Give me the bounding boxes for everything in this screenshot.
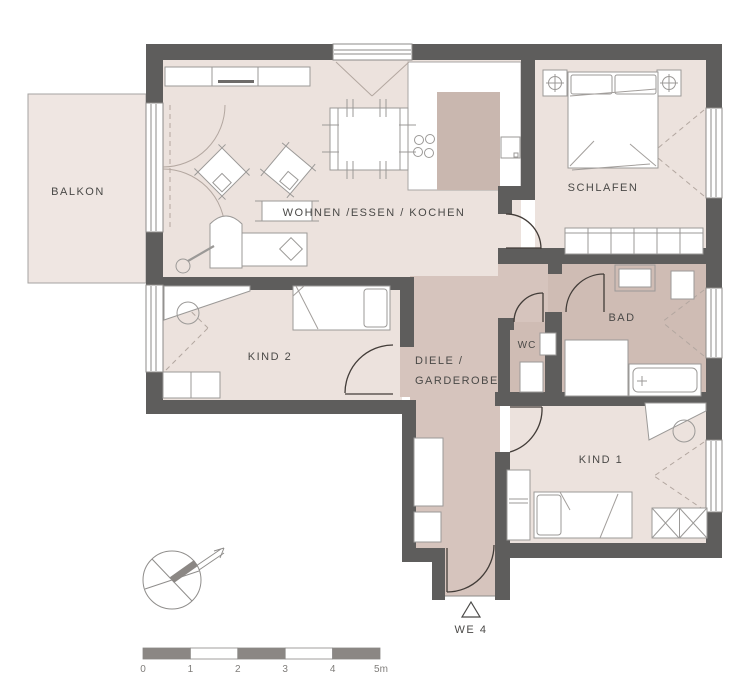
single-bed [534,492,632,538]
washbasin [615,265,655,291]
single-bed [293,286,390,330]
wall-segment [548,264,562,274]
label-bad: BAD [608,312,635,324]
floor-plan-drawing: 0 1 2 3 4 5m BALKON WOHNEN /ESSEN / KOCH… [0,0,748,683]
sideboard [165,67,310,86]
label-balkon: BALKON [51,186,105,198]
wardrobe-crossed [652,508,707,538]
wc-shelf [540,333,556,355]
double-bed [568,72,658,170]
hallway-closets [414,438,443,542]
kitchen-sink [501,137,520,158]
nightstand-lamp [657,70,681,96]
wall-segment [146,400,414,414]
built-in-closet [414,438,443,506]
scale-tick: 0 [140,664,146,675]
scale-tick: 3 [282,664,288,675]
label-kind2: KIND 2 [248,351,292,363]
shower [565,340,628,396]
scale-bar: 0 1 2 3 4 5m [140,648,388,675]
bathtub [629,364,701,396]
tall-closet [507,470,530,540]
dining-table [322,99,416,179]
wall-segment [706,198,722,288]
hallway-nook-floor [498,264,553,322]
wall-segment [706,60,722,108]
scale-segment [143,648,190,659]
triangle-entrance-marker-icon [462,602,480,617]
wall-segment [146,372,163,400]
nightstand-lamp [543,70,567,96]
floor-plan-canvas: 0 1 2 3 4 5m BALKON WOHNEN /ESSEN / KOCH… [0,0,748,683]
wall-segment [146,60,163,103]
scale-segment [190,648,237,659]
scale-segment [333,648,380,659]
compass-north-arrow-icon [143,548,224,609]
scale-tick: 1 [188,664,194,675]
scale-tick: 2 [235,664,241,675]
wall-segment [146,232,163,285]
vestibule-floor [445,548,497,596]
built-in-closet [414,512,441,542]
wall-segment [432,548,445,600]
wardrobe [163,372,220,398]
hallway-floor [410,276,500,548]
wall-segment [146,44,333,60]
label-wohnen: WOHNEN /ESSEN / KOCHEN [283,207,466,219]
scale-tick: 5m [374,664,388,675]
kitchen-island [437,92,500,190]
washing-machine [671,271,694,299]
wall-segment [495,543,722,558]
label-wc: WC [518,340,537,351]
label-entrance-we4: WE 4 [455,624,488,636]
wall-segment [498,186,512,214]
hallway-door-floor [400,347,414,397]
wall-segment [521,44,535,196]
scale-segment [285,648,332,659]
toilet [520,362,543,392]
wardrobe [565,228,703,254]
wall-segment [498,322,510,392]
entrance-marker [462,602,480,617]
wall-segment [402,548,432,562]
label-diele-line2: GARDEROBE [415,375,499,387]
label-schlafen: SCHLAFEN [568,182,639,194]
scale-tick: 4 [330,664,336,675]
wall-segment [412,44,722,60]
label-kind1: KIND 1 [579,454,623,466]
scale-segment [238,648,285,659]
label-diele-line1: DIELE / [415,355,463,367]
